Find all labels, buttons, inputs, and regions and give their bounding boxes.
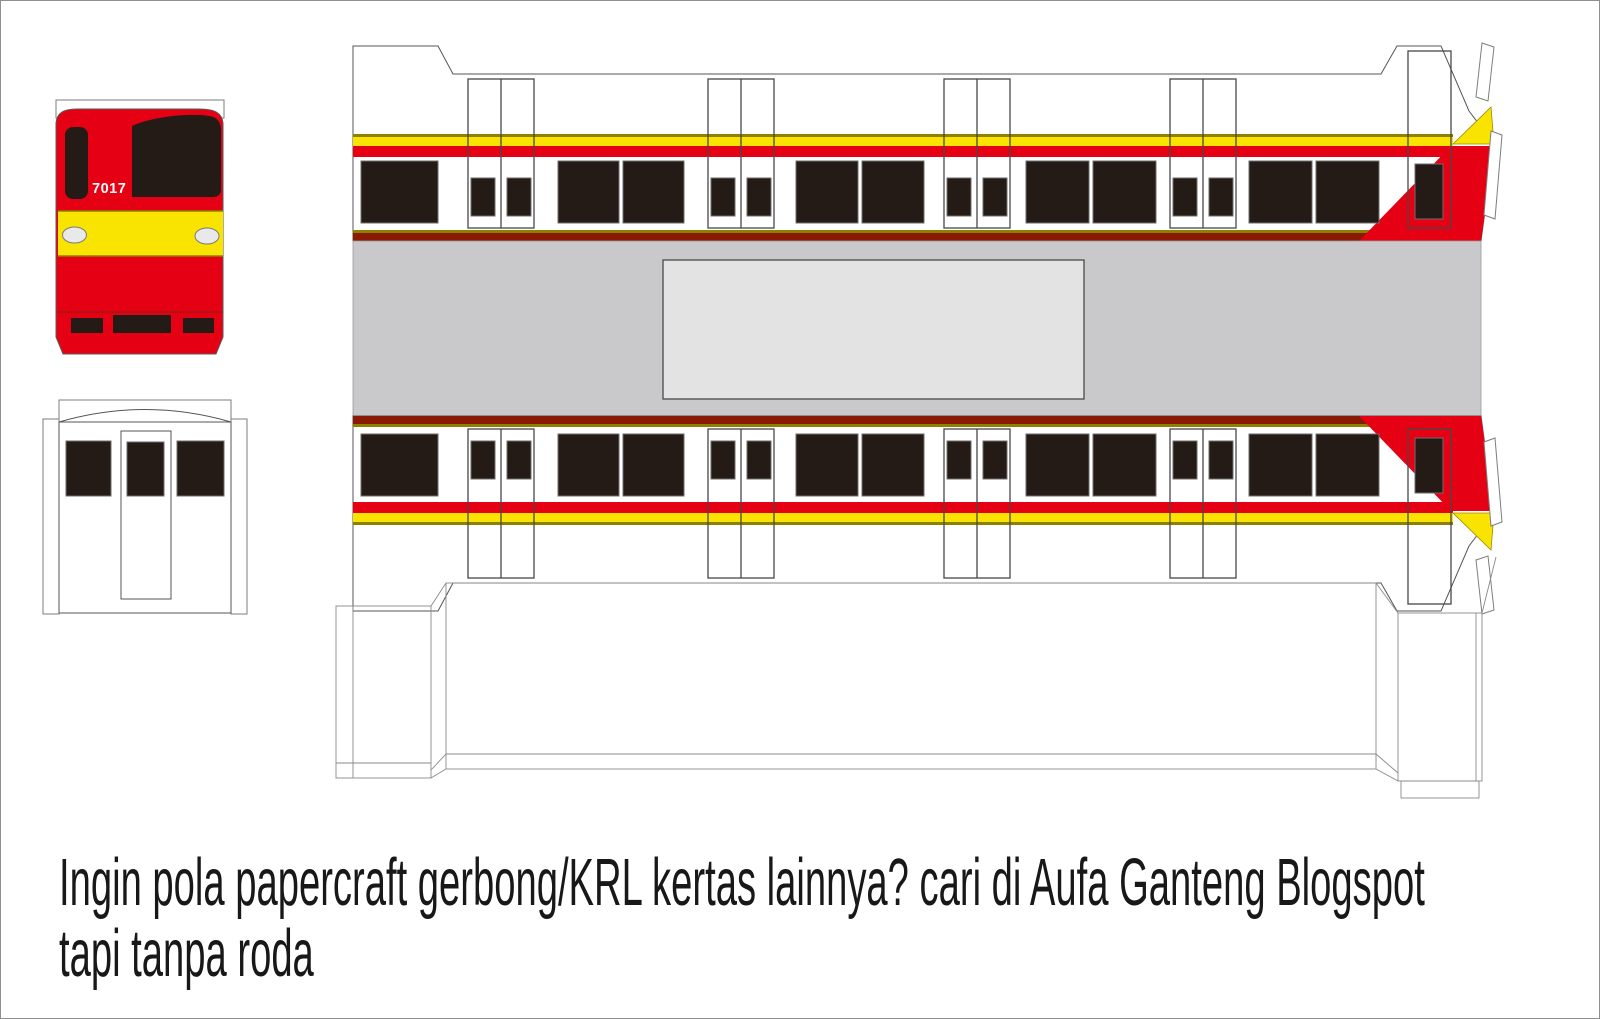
window <box>1316 434 1379 496</box>
roof-vent-panel <box>663 260 1084 399</box>
door-window <box>507 178 531 216</box>
glue-tab <box>1476 43 1494 101</box>
door-window <box>983 178 1007 216</box>
door-window <box>711 178 735 216</box>
window <box>361 161 438 223</box>
floor-fold-strip <box>446 754 1376 769</box>
floor-left-fold <box>431 754 446 770</box>
door-window <box>947 178 971 216</box>
front-windshield <box>132 115 221 197</box>
window <box>796 161 858 223</box>
caption-line-1: Ingin pola papercraft gerbong/KRL kertas… <box>59 847 1425 918</box>
window <box>1316 161 1379 223</box>
cab-door-window <box>1415 438 1443 493</box>
window <box>1093 161 1156 223</box>
roofline-olive <box>353 230 1481 233</box>
side-panel-bottom <box>353 416 1502 614</box>
window <box>1026 434 1089 496</box>
end-window-right <box>177 441 224 496</box>
door-window <box>1173 441 1197 479</box>
roofline-darkred <box>353 233 1481 241</box>
window <box>361 434 438 496</box>
floor-right-fold <box>1376 769 1398 781</box>
window <box>558 434 619 496</box>
end-window-left <box>66 441 111 496</box>
floor-surface <box>446 583 1376 754</box>
roofline-olive <box>353 424 1481 427</box>
window <box>1093 434 1156 496</box>
front-cab-side-window <box>65 127 88 199</box>
cab-door-window <box>1415 164 1443 219</box>
train-number: 7017 <box>92 181 126 197</box>
window <box>862 434 924 496</box>
floor-end-cap-right <box>1398 613 1482 781</box>
door-window <box>1209 441 1233 479</box>
papercraft-sheet: 7017 <box>0 0 1600 1019</box>
stripe-yellow <box>353 513 1453 522</box>
window <box>862 161 924 223</box>
stripe-olive-line <box>353 134 1453 137</box>
door-window <box>471 441 495 479</box>
end-window-center <box>127 442 164 496</box>
door-window <box>747 178 771 216</box>
window <box>796 434 858 496</box>
door-window <box>1173 178 1197 216</box>
door-window <box>507 441 531 479</box>
window <box>558 161 619 223</box>
window <box>623 161 684 223</box>
glue-tab <box>1401 781 1479 798</box>
stripe-yellow <box>353 137 1453 146</box>
front-vent-left <box>71 318 103 333</box>
caption: Ingin pola papercraft gerbong/KRL kertas… <box>59 847 1425 989</box>
door-window <box>471 178 495 216</box>
door-window <box>711 441 735 479</box>
door-window <box>747 441 771 479</box>
door-window <box>947 441 971 479</box>
floor-left-fold <box>431 769 446 778</box>
floor-end-cap-left <box>336 606 431 778</box>
end-view-piece <box>43 400 247 614</box>
caption-line-2: tapi tanpa roda <box>59 918 1425 989</box>
headlight-left <box>63 227 87 243</box>
stripe-red <box>353 502 1453 513</box>
door-window <box>983 441 1007 479</box>
front-vent-right <box>183 318 214 333</box>
end-side-tab-right <box>231 419 247 614</box>
floor-right-fold <box>1376 754 1398 773</box>
floor-panel <box>336 557 1496 798</box>
roofline-darkred <box>353 416 1481 424</box>
roof-panel <box>353 241 1481 416</box>
window <box>623 434 684 496</box>
window <box>1249 434 1312 496</box>
end-side-tab-left <box>43 419 59 614</box>
stripe-olive-line <box>353 522 1453 525</box>
window <box>1026 161 1089 223</box>
front-vent-center <box>113 315 171 333</box>
end-roof-tab <box>59 400 231 422</box>
front-view-piece: 7017 <box>56 100 224 354</box>
side-panel-top <box>353 43 1502 241</box>
headlight-right <box>195 228 219 244</box>
glue-tab <box>1476 556 1494 614</box>
door-window <box>1209 178 1233 216</box>
stripe-red <box>353 146 1453 157</box>
window <box>1249 161 1312 223</box>
